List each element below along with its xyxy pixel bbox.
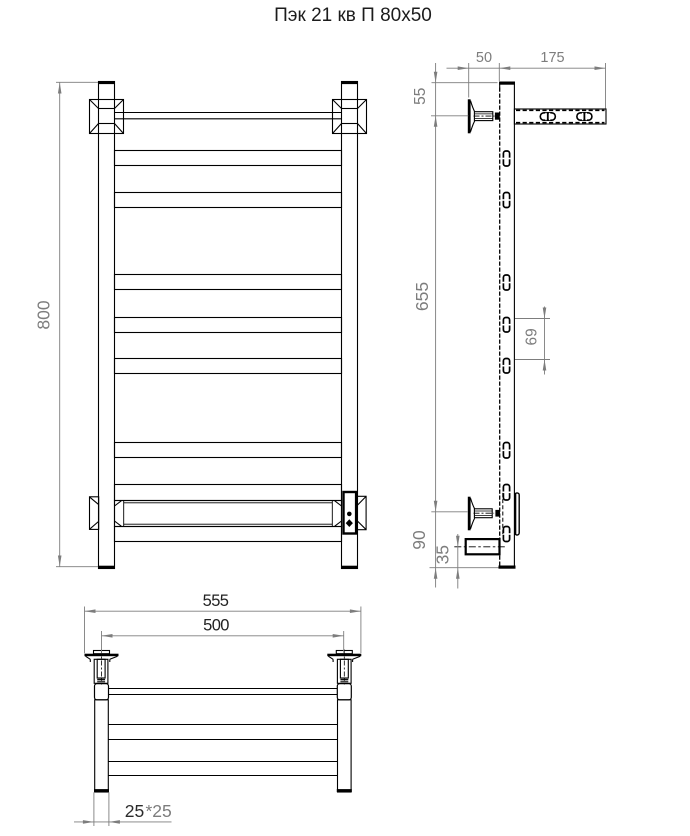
- svg-text:35: 35: [433, 545, 453, 564]
- svg-text:50: 50: [476, 50, 492, 66]
- svg-text:Пэк 21 кв П 80х50: Пэк 21 кв П 80х50: [274, 5, 432, 26]
- svg-text:69: 69: [523, 328, 540, 345]
- svg-text:175: 175: [540, 50, 564, 66]
- svg-text:90: 90: [409, 530, 429, 550]
- svg-text:500: 500: [203, 616, 229, 634]
- svg-text:55: 55: [412, 88, 429, 105]
- svg-text:655: 655: [412, 282, 432, 311]
- svg-text:800: 800: [34, 300, 54, 329]
- svg-text:555: 555: [203, 592, 229, 610]
- svg-text:*25: *25: [146, 801, 172, 821]
- svg-text:25: 25: [125, 801, 144, 821]
